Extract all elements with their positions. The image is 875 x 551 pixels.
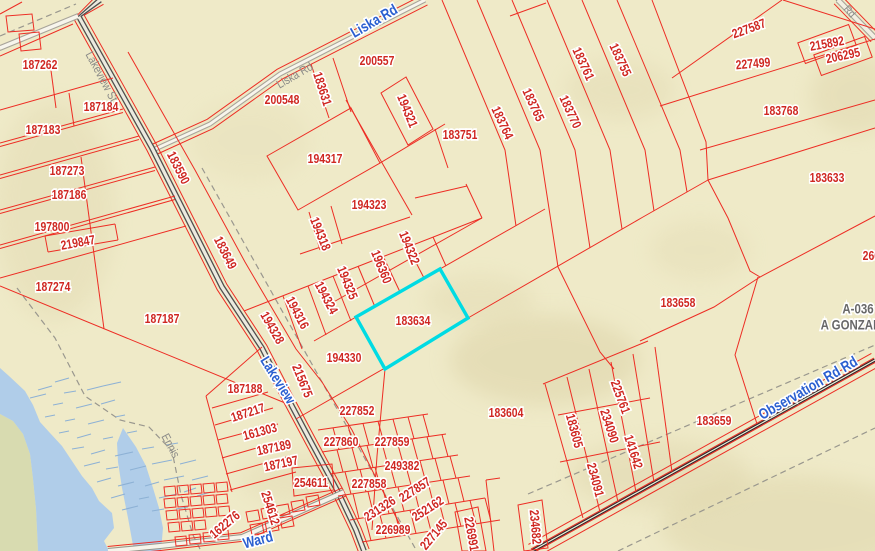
svg-text:200557: 200557 bbox=[360, 54, 395, 68]
svg-text:187262: 187262 bbox=[23, 58, 58, 72]
svg-text:200548: 200548 bbox=[265, 93, 300, 107]
svg-text:249382: 249382 bbox=[385, 459, 420, 473]
svg-text:227858: 227858 bbox=[352, 477, 387, 491]
svg-text:187273: 187273 bbox=[50, 164, 85, 178]
svg-text:187187: 187187 bbox=[145, 312, 180, 326]
svg-text:227499: 227499 bbox=[735, 55, 771, 72]
svg-text:183658: 183658 bbox=[661, 296, 696, 310]
svg-text:183659: 183659 bbox=[697, 414, 732, 428]
svg-text:187184: 187184 bbox=[84, 100, 119, 114]
svg-text:A GONZALES: A GONZALES bbox=[821, 317, 875, 332]
svg-text:187183: 187183 bbox=[26, 123, 61, 137]
svg-text:183751: 183751 bbox=[443, 128, 478, 142]
svg-text:194330: 194330 bbox=[327, 351, 362, 365]
svg-text:254611: 254611 bbox=[294, 476, 329, 490]
svg-text:234682: 234682 bbox=[526, 509, 543, 545]
svg-text:227852: 227852 bbox=[340, 404, 375, 418]
svg-text:197800: 197800 bbox=[35, 220, 70, 234]
svg-text:266915: 266915 bbox=[863, 249, 875, 263]
svg-text:183634: 183634 bbox=[396, 314, 431, 328]
svg-text:227860: 227860 bbox=[324, 435, 359, 449]
svg-text:A-036: A-036 bbox=[842, 301, 873, 316]
svg-text:183768: 183768 bbox=[764, 104, 799, 118]
svg-text:187274: 187274 bbox=[36, 280, 71, 294]
svg-text:194323: 194323 bbox=[352, 198, 387, 212]
svg-text:194317: 194317 bbox=[308, 152, 343, 166]
svg-text:226989: 226989 bbox=[376, 523, 411, 537]
svg-text:183604: 183604 bbox=[489, 406, 524, 420]
svg-text:227859: 227859 bbox=[375, 435, 410, 449]
svg-text:187188: 187188 bbox=[228, 382, 263, 396]
svg-text:183633: 183633 bbox=[810, 171, 845, 185]
svg-text:187186: 187186 bbox=[52, 188, 87, 202]
